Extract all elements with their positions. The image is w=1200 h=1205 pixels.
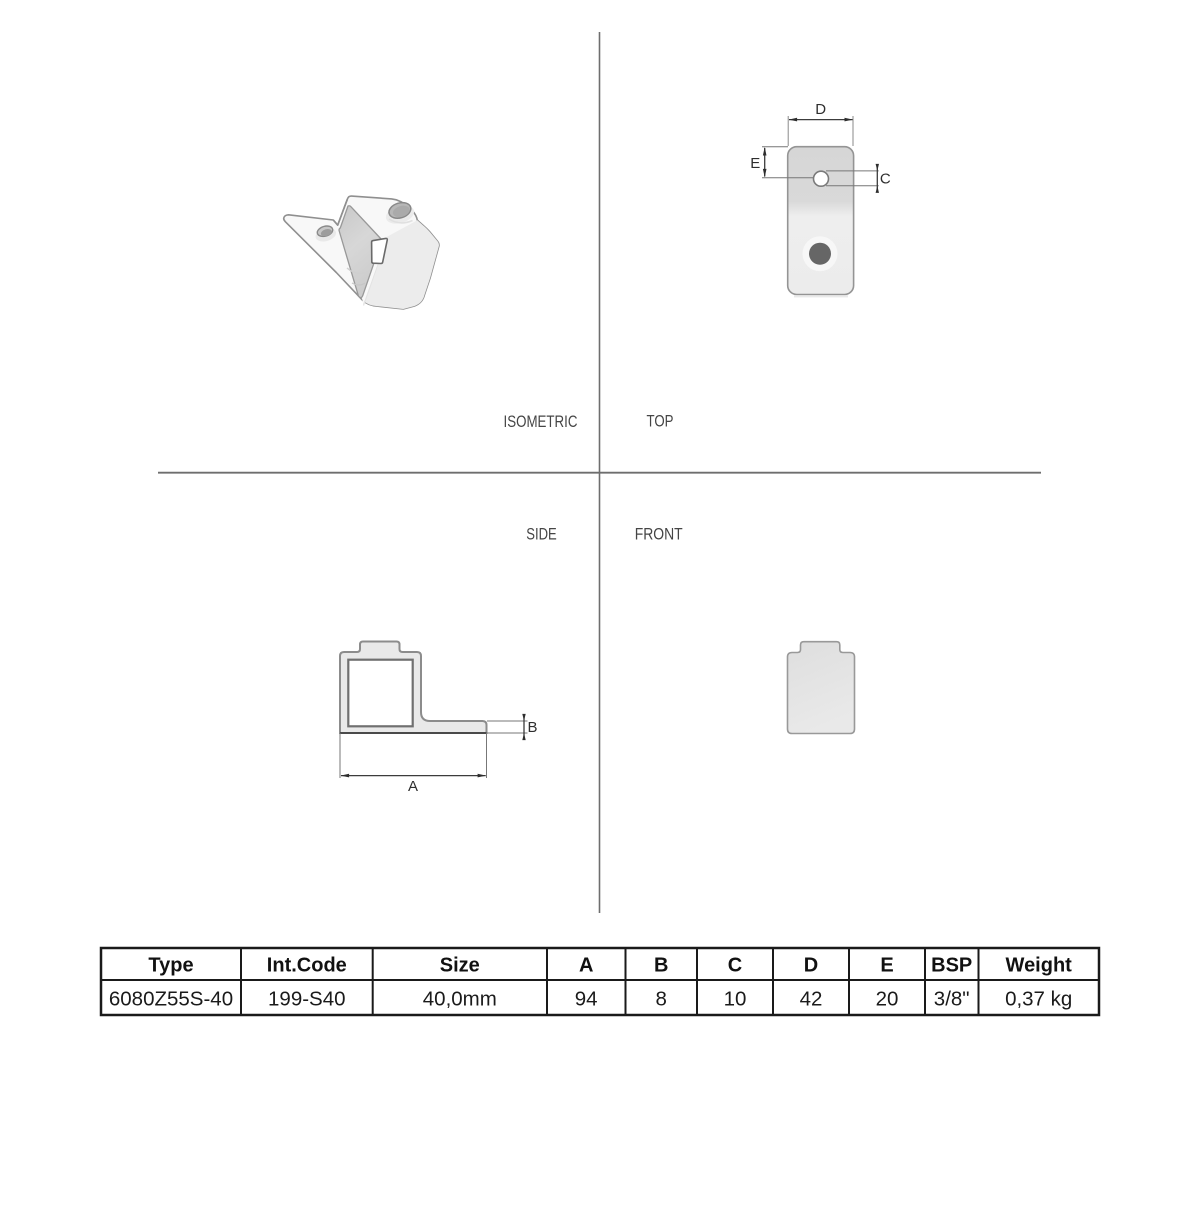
svg-text:D: D xyxy=(804,955,818,977)
svg-text:D: D xyxy=(815,101,826,118)
svg-text:0,37 kg: 0,37 kg xyxy=(1005,988,1072,1011)
svg-text:3/8": 3/8" xyxy=(934,988,970,1011)
svg-text:40,0mm: 40,0mm xyxy=(423,988,497,1011)
svg-text:A: A xyxy=(579,955,593,977)
svg-text:Size: Size xyxy=(440,955,480,977)
svg-text:8: 8 xyxy=(655,988,666,1011)
svg-text:E: E xyxy=(750,155,760,172)
svg-text:E: E xyxy=(880,955,893,977)
svg-text:199-S40: 199-S40 xyxy=(268,988,346,1011)
svg-text:B: B xyxy=(527,719,537,736)
svg-text:TOP: TOP xyxy=(647,413,674,431)
svg-text:42: 42 xyxy=(800,988,823,1011)
svg-text:A: A xyxy=(408,778,418,795)
svg-text:94: 94 xyxy=(575,988,598,1011)
svg-text:B: B xyxy=(654,955,668,977)
svg-text:SIDE: SIDE xyxy=(526,526,557,544)
svg-text:C: C xyxy=(728,955,742,977)
svg-text:BSP: BSP xyxy=(931,955,972,977)
svg-text:10: 10 xyxy=(724,988,747,1011)
svg-text:6080Z55S-40: 6080Z55S-40 xyxy=(109,988,233,1011)
svg-text:Weight: Weight xyxy=(1006,955,1073,977)
svg-text:20: 20 xyxy=(876,988,899,1011)
svg-text:Type: Type xyxy=(148,955,193,977)
svg-text:Int.Code: Int.Code xyxy=(267,955,347,977)
svg-text:C: C xyxy=(880,171,891,188)
svg-text:FRONT: FRONT xyxy=(635,526,683,544)
svg-text:ISOMETRIC: ISOMETRIC xyxy=(504,413,578,431)
